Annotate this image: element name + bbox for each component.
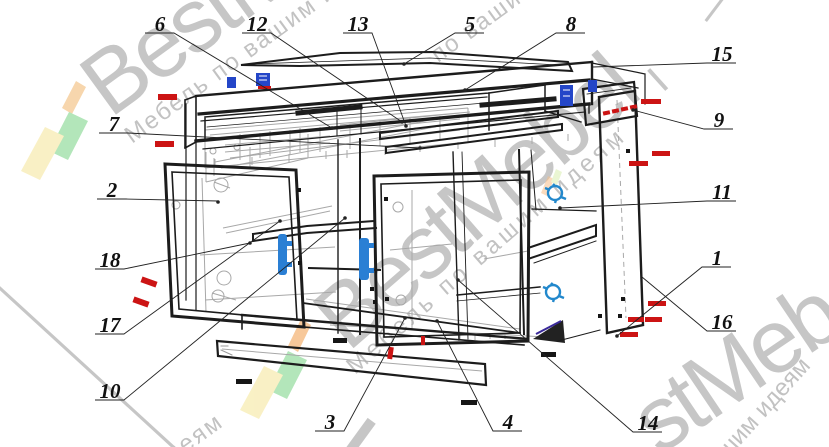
svg-text:1: 1 xyxy=(712,246,723,270)
svg-text:идеям: идеям xyxy=(148,408,229,447)
svg-text:14: 14 xyxy=(638,411,659,435)
svg-text:9: 9 xyxy=(714,108,725,132)
svg-text:15: 15 xyxy=(712,42,733,66)
svg-text:5: 5 xyxy=(465,12,476,36)
svg-text:10: 10 xyxy=(100,379,122,403)
svg-text:4: 4 xyxy=(502,410,514,434)
svg-text:13: 13 xyxy=(348,12,369,36)
svg-text:12: 12 xyxy=(247,12,269,36)
svg-text:16: 16 xyxy=(712,310,734,334)
svg-text:8: 8 xyxy=(566,12,577,36)
svg-text:7: 7 xyxy=(109,112,121,136)
svg-text:2: 2 xyxy=(106,178,118,202)
svg-text:11: 11 xyxy=(712,180,732,204)
svg-text:6: 6 xyxy=(155,12,166,36)
svg-text:17: 17 xyxy=(100,313,123,337)
svg-text:18: 18 xyxy=(100,248,122,272)
svg-text:3: 3 xyxy=(324,410,336,434)
